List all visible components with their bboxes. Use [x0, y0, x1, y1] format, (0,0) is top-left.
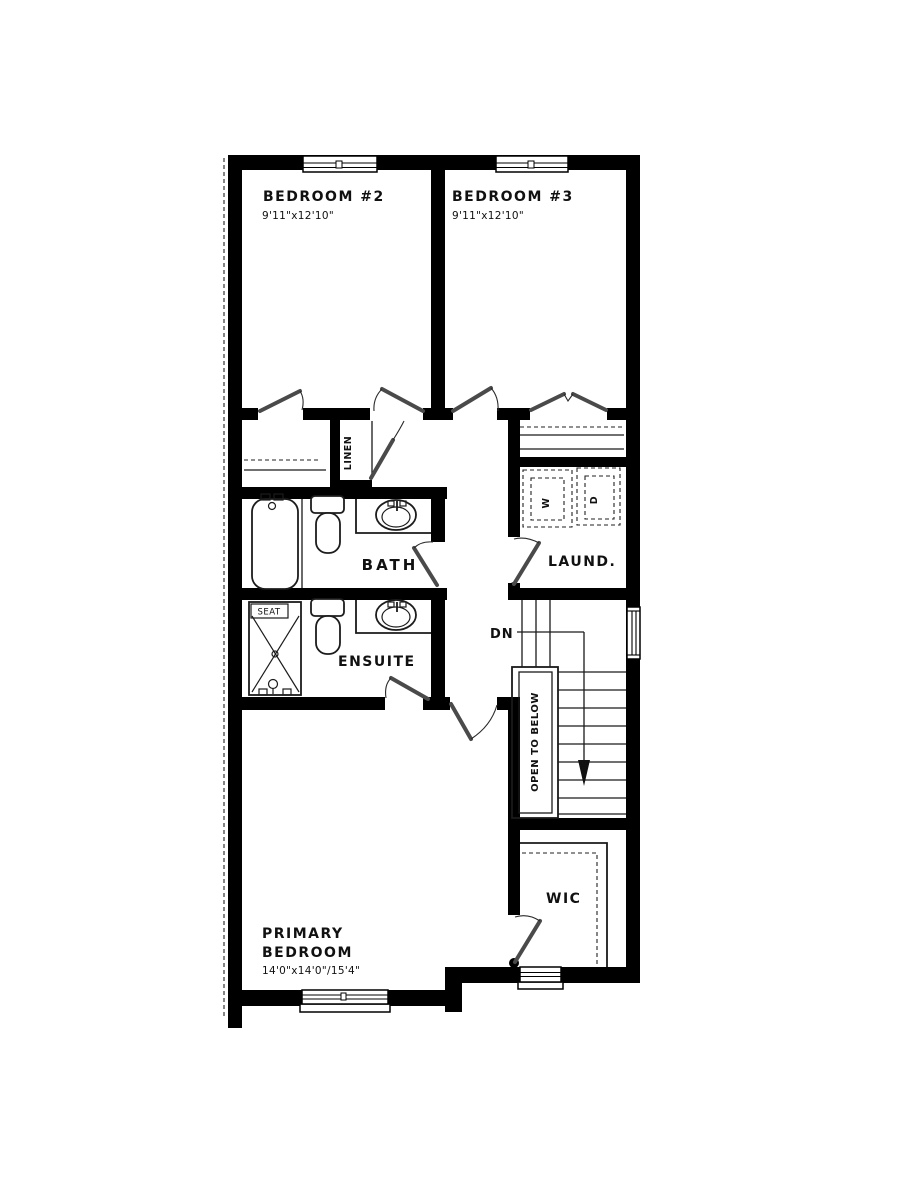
floorplan-page: W D DN OPEN TO BELOW — [0, 0, 900, 1200]
bedroom3-closet-doors — [531, 394, 606, 410]
bathtub-icon — [252, 499, 298, 589]
ensuite-sink-icon — [376, 600, 416, 630]
bedroom3-label: BEDROOM #3 — [452, 189, 574, 205]
stairs-dn-label: DN — [490, 627, 514, 642]
dryer-label: D — [589, 496, 600, 504]
primary-bedroom-dims: 14'0"x14'0"/15'4" — [262, 965, 360, 977]
laundry-label: LAUND. — [548, 554, 616, 570]
ensuite-door — [386, 678, 428, 699]
primary-bedroom-door — [451, 704, 497, 739]
bath-label: BATH — [362, 556, 419, 574]
bedroom2-dims: 9'11"x12'10" — [262, 210, 334, 222]
stair-down-arrow-icon — [578, 760, 590, 786]
linen-label: LINEN — [343, 436, 354, 470]
stairwell-window — [627, 607, 640, 659]
wic-door — [515, 916, 540, 962]
bath-fixtures — [252, 494, 431, 589]
open-to-below-label: OPEN TO BELOW — [530, 692, 541, 792]
bath-sink-icon — [376, 500, 416, 530]
laundry-door — [514, 538, 539, 584]
ensuite-fixtures: SEAT — [249, 599, 431, 695]
bedroom2-closet-door — [260, 391, 303, 411]
floorplan-canvas: W D DN OPEN TO BELOW — [0, 0, 900, 1200]
primary-bedroom-label-line1: PRIMARY — [262, 926, 344, 942]
bedroom2-label: BEDROOM #2 — [263, 189, 385, 205]
windows — [300, 156, 640, 1012]
bedroom2-door — [374, 389, 423, 411]
ensuite-label: ENSUITE — [338, 654, 416, 670]
washer-label: W — [541, 497, 552, 508]
linen-door — [371, 421, 404, 478]
shower-seat-label: SEAT — [257, 608, 280, 618]
ensuite-toilet-icon — [311, 599, 344, 654]
primary-bedroom-label-line2: BEDROOM — [262, 945, 353, 961]
bath-toilet-icon — [311, 496, 344, 553]
wic-window — [518, 967, 563, 989]
primary-bedroom-window — [300, 990, 390, 1012]
bedroom3-window — [496, 156, 568, 172]
bedroom3-dims: 9'11"x12'10" — [452, 210, 524, 222]
stair-treads — [558, 672, 626, 814]
wic-label: WIC — [546, 891, 581, 907]
bedroom3-door — [453, 388, 498, 411]
laundry-appliances: W D — [523, 468, 620, 527]
bedroom2-window — [303, 156, 377, 172]
